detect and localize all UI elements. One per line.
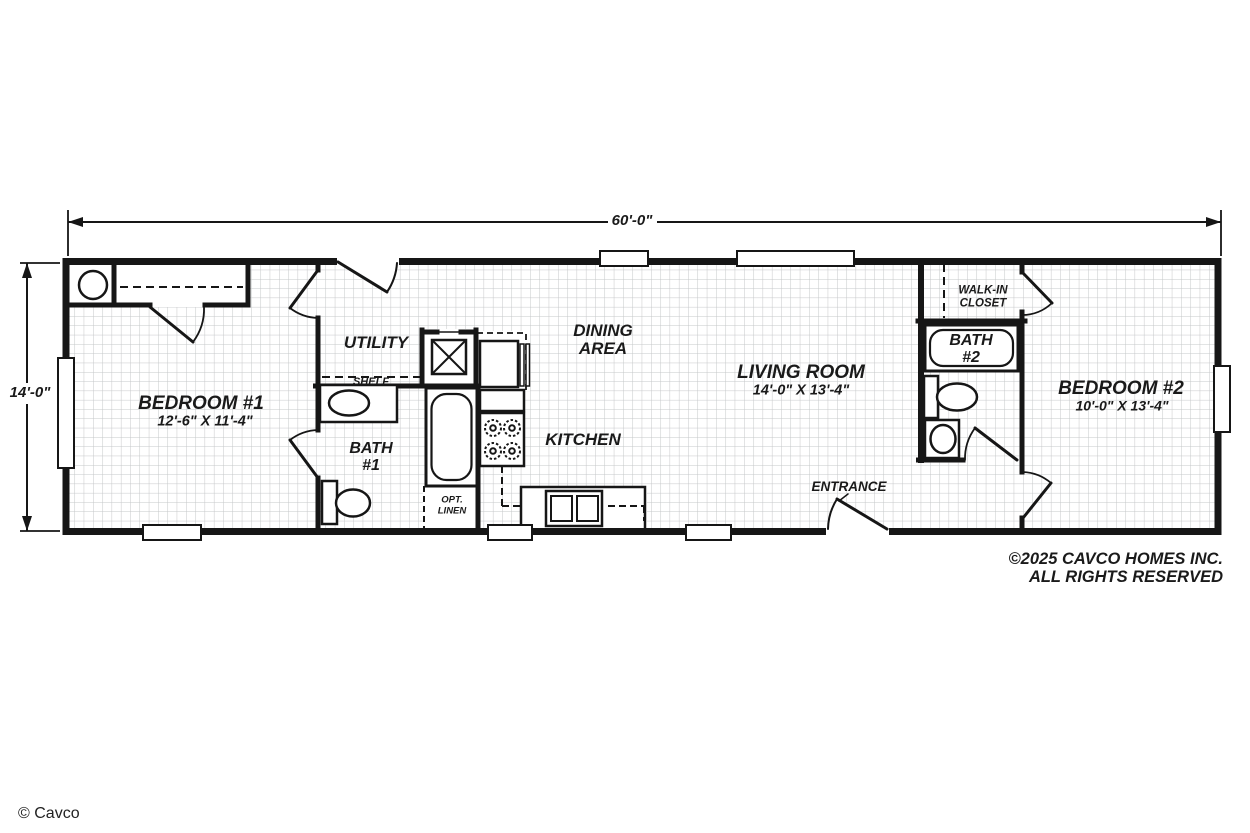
bath1-label: BATH #1 (349, 440, 392, 474)
bath2-label-line2: #2 (949, 349, 992, 366)
kitchen-sink-icon (546, 491, 602, 526)
bedroom2-label: BEDROOM #2 (1058, 379, 1184, 399)
toilet-icon (925, 420, 959, 458)
bath1-label-line2: #1 (349, 457, 392, 474)
copyright-line2: ALL RIGHTS RESERVED (1009, 569, 1223, 587)
kitchen-label: KITCHEN (545, 431, 621, 449)
opt-linen-label: OPT. LINEN (438, 496, 467, 517)
range-icon (480, 413, 524, 466)
bath2-label-line1: BATH (949, 332, 992, 349)
living-room-label: LIVING ROOM (737, 363, 865, 383)
arrowhead (68, 217, 83, 227)
lavatory-icon (329, 391, 369, 416)
window (488, 525, 532, 540)
water-heater-icon (432, 340, 466, 374)
lavatory-icon (937, 384, 977, 411)
bedroom1-label: BEDROOM #1 (138, 394, 264, 414)
bath1-vanity (320, 385, 397, 422)
opt-linen-line1: OPT. (438, 496, 467, 507)
overall-width-dimension: 60'-0" (612, 213, 653, 229)
copyright-notice: ©2025 CAVCO HOMES INC. ALL RIGHTS RESERV… (1009, 551, 1223, 586)
arrowhead (22, 516, 32, 531)
walk-in-closet-line1: WALK-IN (958, 285, 1007, 298)
utility-label: UTILITY (344, 334, 408, 352)
bath2-label: BATH #2 (949, 332, 992, 366)
bath1-label-line1: BATH (349, 440, 392, 457)
window (737, 251, 854, 266)
bathtub-icon (426, 388, 477, 486)
window (1214, 366, 1230, 432)
shelf-label: SHELF (353, 377, 389, 389)
arrowhead (22, 263, 32, 278)
entrance-label: ENTRANCE (811, 480, 886, 494)
dining-line2: AREA (573, 340, 633, 358)
floor-plan-page: 60'-0" 14'-0" BEDROOM #1 12'-6" X 11'-4"… (0, 0, 1250, 833)
walk-in-closet-label: WALK-IN CLOSET (958, 285, 1007, 310)
opt-linen-line2: LINEN (438, 506, 467, 517)
dining-line1: DINING (573, 322, 633, 340)
kitchen-counter (480, 390, 524, 411)
appliance-icon (79, 271, 107, 299)
arrowhead (1206, 217, 1221, 227)
window (686, 525, 731, 540)
dining-area-label: DINING AREA (573, 322, 633, 358)
walk-in-closet-line2: CLOSET (958, 297, 1007, 310)
cavco-credit: © Cavco (18, 805, 80, 823)
bedroom1-size: 12'-6" X 11'-4" (157, 414, 252, 429)
window (58, 358, 74, 468)
copyright-line1: ©2025 CAVCO HOMES INC. (1009, 551, 1223, 569)
window (600, 251, 648, 266)
overall-depth-dimension: 14'-0" (10, 385, 51, 401)
bedroom2-size: 10'-0" X 13'-4" (1075, 399, 1168, 414)
window (143, 525, 201, 540)
living-room-size: 14'-0" X 13'-4" (753, 383, 849, 398)
